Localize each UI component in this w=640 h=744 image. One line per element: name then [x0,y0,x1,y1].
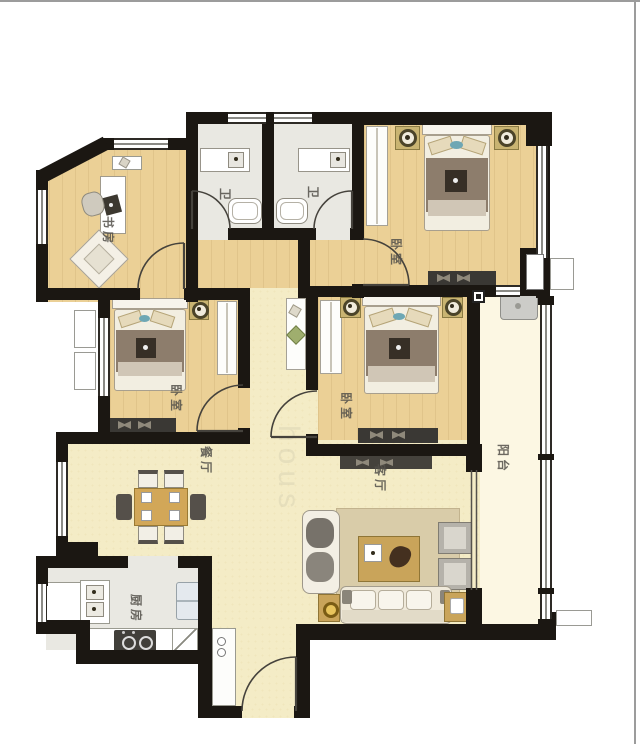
utensil-dot [132,631,135,634]
gold-ring-icon [323,602,339,618]
ac-platform [550,258,574,290]
window [98,318,110,396]
wall [466,588,482,628]
window-tick [538,619,554,628]
wall [238,288,250,388]
window [36,584,47,622]
cushion-dot [453,178,458,183]
wall [466,444,482,472]
lamp-dot [348,304,352,308]
wall [350,228,364,240]
wall [76,650,212,664]
wall [178,556,212,568]
window [56,462,68,536]
floor-patch [238,388,250,428]
window-tick [266,112,274,124]
wall [262,124,274,240]
side-table-top [450,598,464,614]
wall [296,624,556,640]
lamp-dot [504,135,509,140]
wall [228,228,316,240]
ac-platform [556,610,592,626]
burner-icon [122,636,136,650]
knob-icon [217,637,226,646]
wall [36,620,90,634]
window [36,190,48,244]
watermark: hous [271,425,305,514]
lounge-seat-cushion [444,527,466,549]
page-border-right [634,0,636,744]
room-label-dining: 餐厅 [198,446,215,476]
sink-dot [92,607,96,611]
plate [141,492,152,503]
wall [36,288,140,300]
bathtub-inner [232,202,258,220]
wall [294,706,310,718]
lamp-icon [343,299,360,316]
wall [352,112,542,125]
kitchen-counter [46,582,84,622]
knob-icon [217,648,226,657]
burner-icon [139,636,153,650]
window [114,138,168,150]
bed-decor [393,313,405,320]
floor-patch [314,228,352,240]
lamp-dot [405,135,410,140]
cushion-dot [396,345,401,350]
room-label-bedroom-left: 卧室 [168,384,185,414]
floor-patch [306,390,318,434]
column-symbol-inner [476,294,481,299]
room-label-bath-2: 卫 [305,186,322,201]
sofa-cushion [350,590,376,610]
wall-niche [526,254,544,290]
lamp-dot [197,307,201,311]
wardrobe-divider [376,128,378,224]
page-border-top [0,0,640,2]
plate [169,510,180,521]
sofa-cushion [378,590,404,610]
bed-decor [450,141,463,149]
ac-platform [74,310,96,348]
bed-decor [139,315,150,322]
wardrobe-divider [330,302,332,372]
plate [169,492,180,503]
wall [296,624,310,718]
dining-chair [164,526,184,544]
wall [467,286,480,458]
lamp-icon [445,299,462,316]
wardrobe-divider [226,303,228,373]
utensil-dot [122,631,125,634]
wall [306,286,318,390]
window-tick [538,454,554,460]
sofa-cushion [406,590,432,610]
dining-chair [138,526,158,544]
wall [186,112,198,302]
bed-headboard [422,124,492,135]
floor-plan: hous [0,0,640,744]
lounge-seat-cushion [444,563,466,585]
room-label-study: 书房 [100,216,117,246]
wall [56,542,98,558]
window [496,285,520,297]
floor-patch [242,706,294,718]
tray-dot [371,551,375,555]
wall [198,568,212,718]
faucet-dot [336,157,340,161]
lamp-dot [450,304,454,308]
corner-cabinet [172,628,198,652]
room-label-bedroom-middle: 卧室 [338,392,355,422]
sofa-pillow [342,590,352,604]
window-tick [538,296,554,305]
cushion-dot [143,345,148,350]
dining-bench [116,494,132,520]
washer-dot [515,303,521,309]
dining-chair [138,470,158,488]
armchair-cushion [306,552,334,582]
wall [56,432,250,444]
sink-dot [92,590,96,594]
room-label-bath-1: 卫 [217,188,234,203]
wall [352,112,364,239]
lamp-icon [192,302,209,319]
faucet-dot [234,157,238,161]
room-label-kitchen: 厨房 [128,594,145,624]
floor-patch [128,556,178,568]
armchair-cushion [306,518,334,548]
plate [141,510,152,521]
ac-platform [74,352,96,390]
window-tick [538,588,554,594]
blanket-fold [428,200,486,216]
bathtub-inner [280,202,304,220]
blanket-fold [368,366,435,382]
dining-bench [190,494,206,520]
room-label-living: 客厅 [372,464,389,494]
balcony-window [540,296,552,628]
wall [306,444,480,456]
room-label-balcony: 阳台 [495,444,512,474]
desk-dot [109,203,113,207]
window [536,146,548,258]
dining-chair [164,470,184,488]
wall [36,556,48,586]
sofa-back [342,610,450,622]
blanket-fold [118,362,182,376]
room-label-bedroom-master: 卧室 [388,238,405,268]
